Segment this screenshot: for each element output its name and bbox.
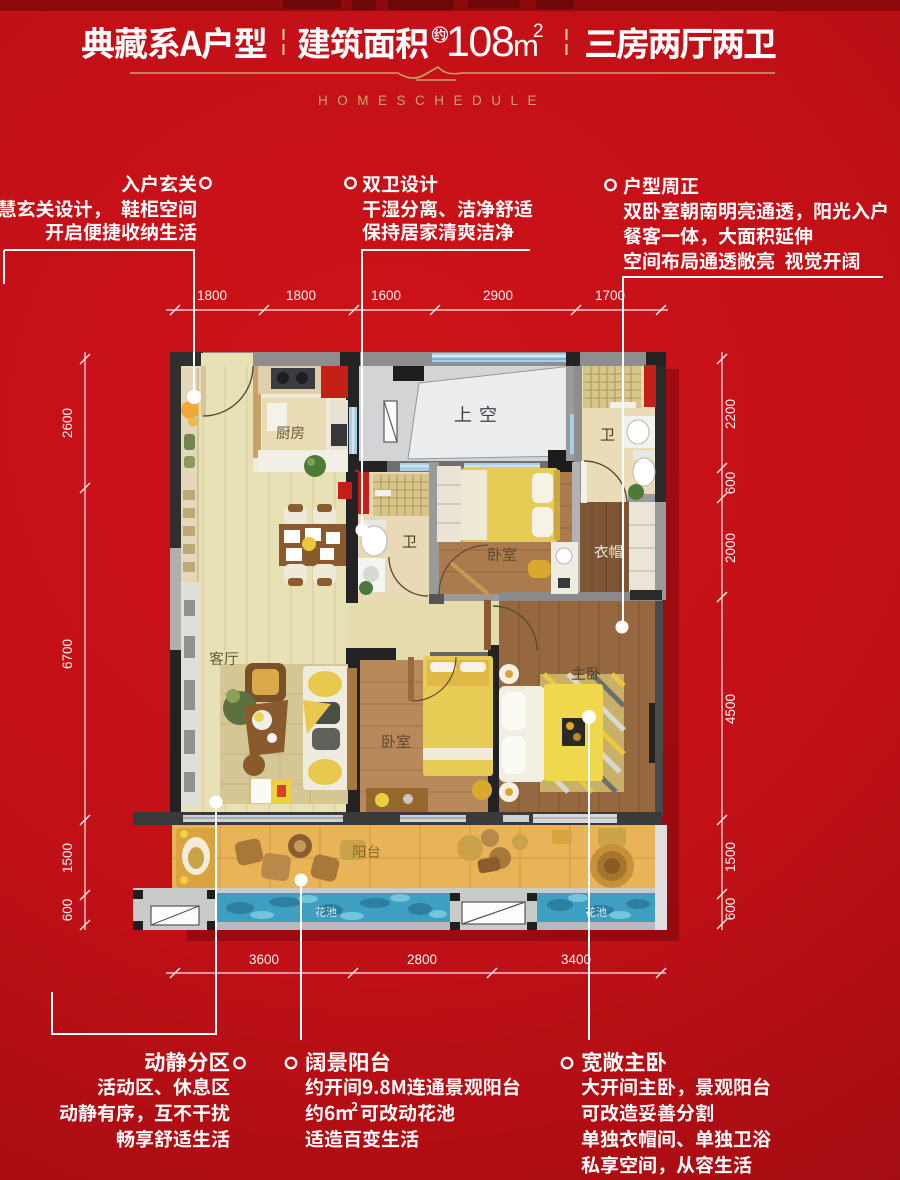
svg-text:6700: 6700: [60, 639, 75, 669]
svg-text:2000: 2000: [723, 533, 738, 563]
svg-text:3600: 3600: [249, 952, 279, 967]
svg-text:1800: 1800: [197, 288, 227, 303]
svg-text:2200: 2200: [723, 399, 738, 429]
svg-text:600: 600: [723, 898, 738, 921]
svg-text:600: 600: [60, 899, 75, 922]
svg-text:2600: 2600: [60, 408, 75, 438]
svg-text:1800: 1800: [286, 288, 316, 303]
svg-text:108: 108: [446, 18, 514, 66]
svg-text:4500: 4500: [723, 694, 738, 724]
svg-text:2800: 2800: [407, 952, 437, 967]
svg-text:1500: 1500: [723, 842, 738, 872]
svg-text:2900: 2900: [483, 288, 513, 303]
svg-text:HOMESCHEDULE: HOMESCHEDULE: [318, 93, 546, 108]
svg-text:3400: 3400: [561, 952, 591, 967]
svg-text:1500: 1500: [60, 843, 75, 873]
svg-text:600: 600: [723, 472, 738, 495]
svg-text:1600: 1600: [371, 288, 401, 303]
svg-text:2: 2: [533, 21, 544, 42]
svg-text:1700: 1700: [595, 288, 625, 303]
